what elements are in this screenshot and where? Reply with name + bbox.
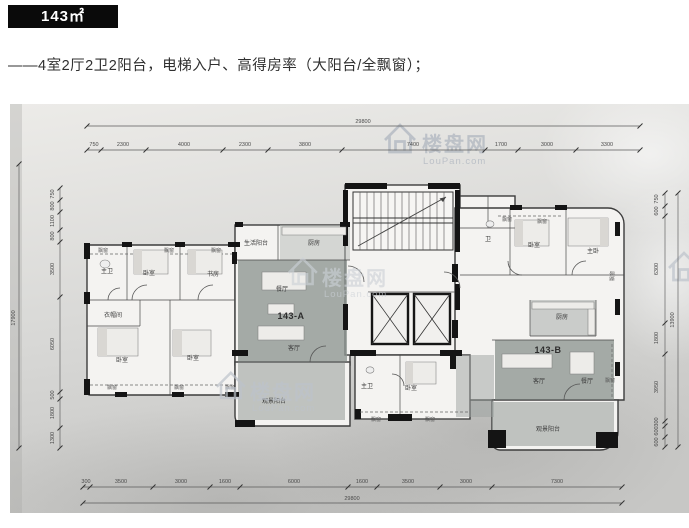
unit-b-label: 143-B [534,345,561,355]
bay-window-label: 飘窗 [537,218,547,225]
room-label: 厨房 [556,313,568,321]
dim-label: 600 [654,206,660,215]
staircase [353,192,453,250]
bay-window-label: 飘窗 [98,247,108,254]
dim-label: 6000 [288,479,300,485]
bay-window-label: 飘窗 [211,247,221,254]
dim-label: 4000 [178,142,190,148]
bay-window-label: 飘窗 [164,247,174,254]
article-page: 143㎡ ——4室2厅2卫2阳台，电梯入户、高得房率（大阳台/全飘窗）； [0,0,689,528]
dim-label: 3300 [601,142,613,148]
dim-label: 800 [50,231,56,240]
paper-left-edge [10,104,22,513]
room-label: 主卧 [587,247,599,255]
watermark-domain: LouPan.com [324,289,387,300]
unit-a-label: 143-A [277,311,304,321]
watermark-domain: LouPan.com [252,403,315,414]
dim-total-right: 13900 [670,312,676,327]
dim-label: 2300 [117,142,129,148]
floorplan-image: 主卫 卧室 书房 衣帽间 卧室 卧室 生活阳台 厨房 餐厅 客厅 观景阳台 主卫… [10,104,689,513]
dim-label: 3500 [50,263,56,275]
dim-label: 300 [654,417,660,426]
watermark-brand: 楼盘网 [422,132,488,156]
dim-label: 3800 [299,142,311,148]
dim-label: 6300 [654,263,660,275]
room-label: 书房 [207,270,219,278]
dim-label: 1600 [219,479,231,485]
dim-label: 1100 [50,215,56,227]
dim-label: 3000 [175,479,187,485]
room-label: 厨房 [308,239,320,247]
dim-label: 1800 [50,407,56,419]
dim-label: 1300 [50,432,56,444]
bay-window-label: 飘窗 [605,377,615,384]
bay-window-label: 飘窗 [425,416,435,423]
bay-window-label: 飘窗 [502,216,512,223]
dim-label: 750 [89,142,98,148]
dim-total-left: 17900 [11,310,17,325]
area-badge-text: 143㎡ [41,8,85,25]
dim-label: 7300 [551,479,563,485]
room-label: 卧室 [143,269,155,277]
room-label: 卧室 [528,241,540,249]
dim-label: 3950 [654,381,660,393]
floorplan-svg: 主卫 卧室 书房 衣帽间 卧室 卧室 生活阳台 厨房 餐厅 客厅 观景阳台 主卫… [10,104,689,513]
dim-total-bottom: 29800 [344,496,359,502]
dim-label: 3500 [402,479,414,485]
dim-label: 7400 [407,142,419,148]
room-label: 餐厅 [581,377,593,385]
room-label: 主卫 [101,267,113,275]
room-label: 主卫 [361,382,373,390]
room-label: 观景阳台 [536,425,560,433]
room-label: 客厅 [288,344,300,352]
room-label: 餐厅 [276,285,288,293]
dim-label: 600 [654,437,660,446]
bay-window-label: 飘窗 [371,416,381,423]
description-text: ——4室2厅2卫2阳台，电梯入户、高得房率（大阳台/全飘窗）； [8,54,430,75]
room-label: 衣帽间 [104,311,122,319]
bay-window-label: 飘窗 [107,384,117,391]
room-label: 生活阳台 [244,239,268,247]
watermark-brand: 楼盘网 [250,380,316,404]
dim-total-top: 29800 [355,119,370,125]
dim-label: 6050 [50,338,56,350]
dim-label: 600 [654,426,660,435]
dim-label: 1800 [654,332,660,344]
bay-window-label: 飘窗 [174,384,184,391]
room-label: 卧室 [187,354,199,362]
room-label: 卧室 [405,384,417,392]
dim-label: 2300 [239,142,251,148]
dim-label: 3000 [541,142,553,148]
room-label: 卧室 [116,356,128,364]
watermark-brand: 楼盘网 [322,266,388,290]
room-label: 客厅 [533,377,545,385]
dim-label: 750 [50,189,56,198]
dim-label: 3000 [460,479,472,485]
bay-window-label: 飘窗 [609,271,616,281]
dim-label: 300 [81,479,90,485]
dim-label: 3500 [115,479,127,485]
dim-label: 500 [50,390,56,399]
watermark-domain: LouPan.com [423,156,486,167]
dim-label: 750 [654,194,660,203]
area-badge: 143㎡ [8,5,118,28]
room-label: 卫 [485,236,491,243]
dim-label: 800 [50,201,56,210]
dim-label: 1600 [356,479,368,485]
dim-label: 1700 [495,142,507,148]
